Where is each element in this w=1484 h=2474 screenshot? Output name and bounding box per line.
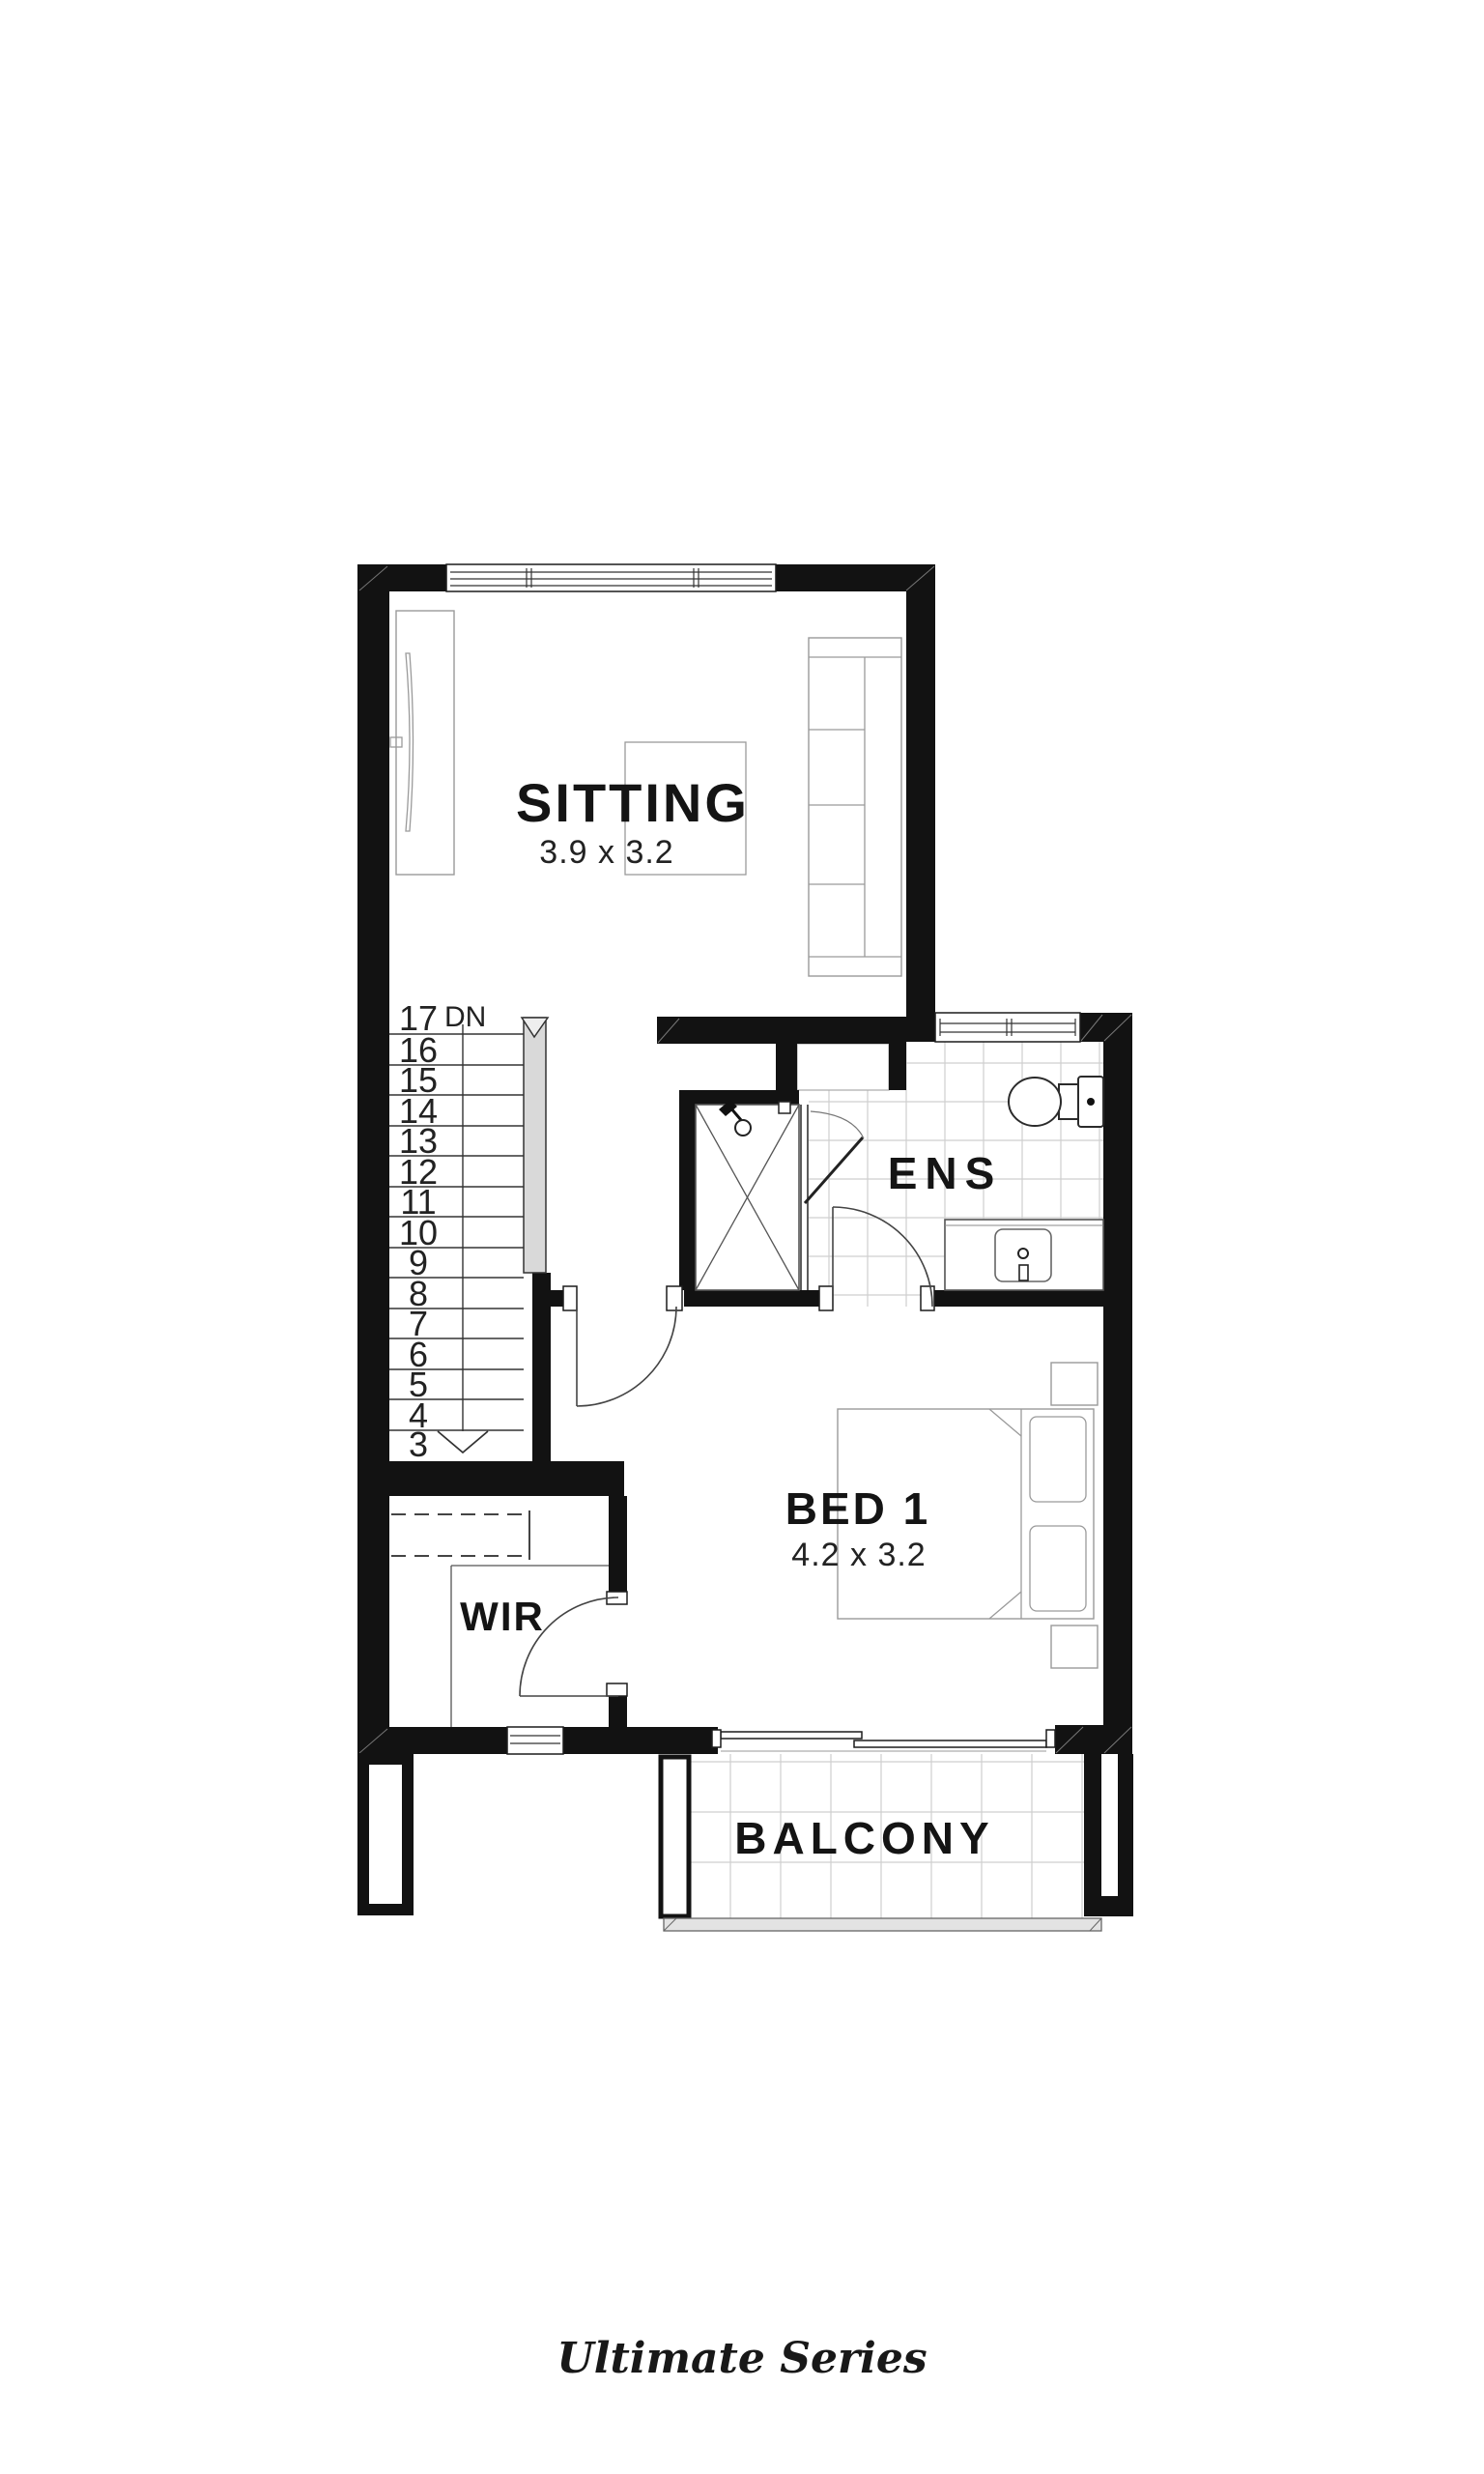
wir-robe-dashed bbox=[391, 1510, 529, 1560]
stair-direction-arrow bbox=[438, 1431, 488, 1453]
room-sitting: SITTING 3.9 x 3.2 bbox=[516, 772, 750, 871]
room-wir: WIR bbox=[460, 1594, 545, 1639]
shower bbox=[696, 1100, 864, 1290]
series-brand-text: Ultimate Series bbox=[556, 2334, 927, 2383]
faucet-icon bbox=[1018, 1249, 1028, 1258]
bed1-label: BED 1 bbox=[785, 1483, 930, 1534]
stair-number: 3 bbox=[409, 1424, 428, 1464]
toilet-icon bbox=[1009, 1077, 1103, 1127]
sitting-label: SITTING bbox=[516, 772, 750, 833]
balcony-sliding-door bbox=[712, 1730, 1055, 1751]
shower-mixer-icon bbox=[779, 1102, 790, 1113]
bed1-dimensions: 4.2 x 3.2 bbox=[791, 1537, 926, 1573]
wir-label: WIR bbox=[460, 1594, 545, 1639]
shower-niche bbox=[797, 1044, 889, 1090]
bedside-table-icon bbox=[1051, 1363, 1098, 1405]
sitting-window bbox=[446, 564, 776, 591]
tv-unit-icon bbox=[390, 611, 454, 875]
vanity bbox=[945, 1220, 1103, 1290]
floor-plan-svg: 17 16 15 14 13 12 11 10 9 8 7 6 5 4 3 DN… bbox=[0, 0, 1484, 2474]
stairs: 17 16 15 14 13 12 11 10 9 8 7 6 5 4 3 DN bbox=[389, 998, 548, 1464]
handrail bbox=[522, 1018, 548, 1273]
sofa-icon bbox=[809, 638, 901, 976]
stairs-down-label: DN bbox=[444, 1001, 486, 1033]
room-balcony: BALCONY bbox=[734, 1813, 994, 1863]
bedroom-door bbox=[577, 1307, 676, 1406]
wir-nib-walls bbox=[451, 1566, 609, 1727]
ens-label: ENS bbox=[888, 1148, 1003, 1198]
ensuite-window bbox=[935, 1013, 1080, 1042]
balcony-label: BALCONY bbox=[734, 1813, 994, 1863]
floor-plan-page: 17 16 15 14 13 12 11 10 9 8 7 6 5 4 3 DN… bbox=[0, 0, 1484, 2474]
room-ens: ENS bbox=[888, 1148, 1003, 1198]
sitting-dimensions: 3.9 x 3.2 bbox=[539, 834, 673, 871]
room-bed1: BED 1 4.2 x 3.2 bbox=[785, 1483, 930, 1573]
bedside-table-icon bbox=[1051, 1625, 1098, 1668]
shower-door bbox=[805, 1137, 863, 1203]
wir-window bbox=[507, 1727, 563, 1754]
